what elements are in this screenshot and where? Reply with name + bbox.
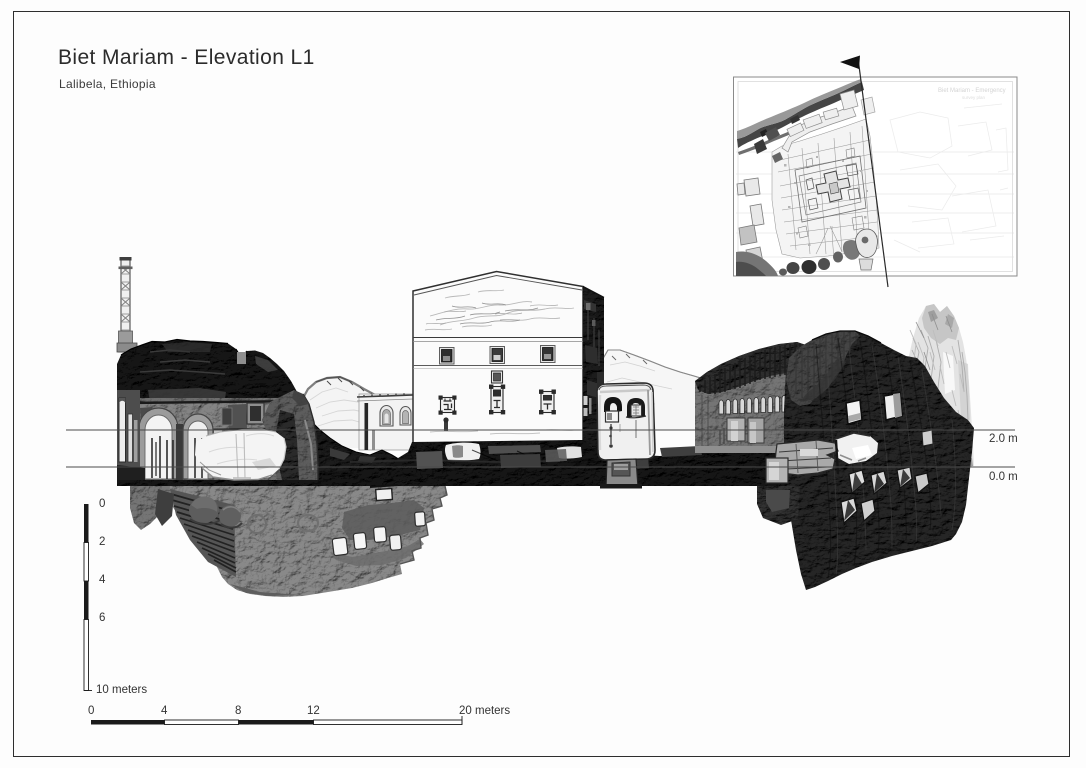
svg-text:survey plan: survey plan <box>962 95 986 100</box>
svg-text:Biet Mariam - Emergency: Biet Mariam - Emergency <box>938 88 1006 94</box>
